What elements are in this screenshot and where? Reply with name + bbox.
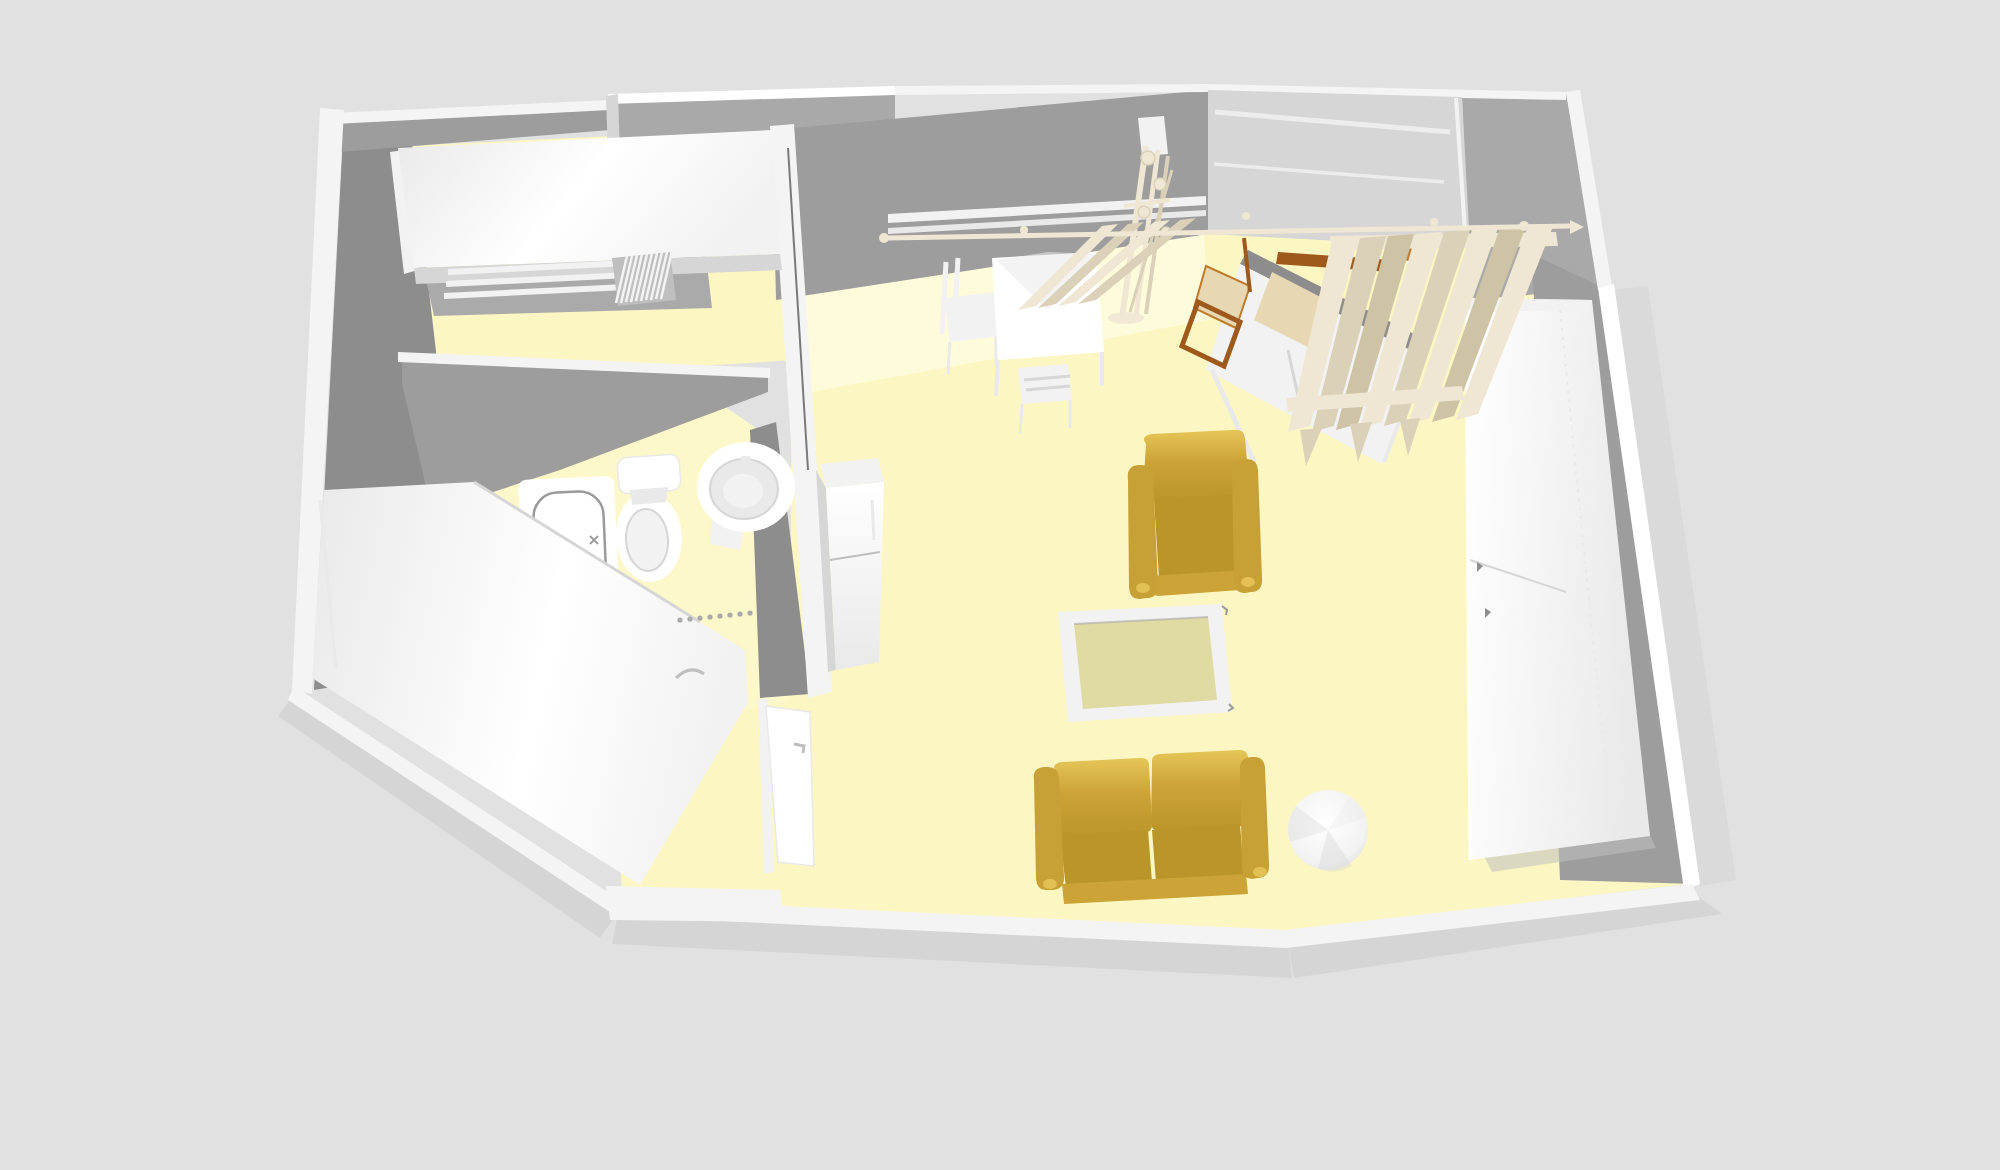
sofa-arm-shine	[1043, 879, 1057, 889]
coat-stand-knob	[1141, 151, 1155, 165]
table-leg	[996, 360, 998, 396]
curtain-ring	[1020, 226, 1028, 234]
counter-knob	[697, 615, 702, 620]
curtain-rod-finial	[879, 233, 889, 243]
curtain-ring	[1519, 221, 1529, 231]
curtain-ring	[1430, 218, 1438, 226]
chair-seat	[944, 292, 1000, 342]
coat-stand-knob	[1154, 178, 1166, 190]
coat-stand-knob	[1138, 206, 1150, 218]
sofa-right-arm	[1240, 757, 1269, 879]
fridge-front	[826, 482, 884, 670]
counter-knob	[707, 614, 712, 619]
chair-seat	[1018, 364, 1072, 404]
toilet-tank	[617, 454, 681, 494]
coffee-table[interactable]	[1058, 604, 1233, 722]
toilet-hinge	[630, 487, 668, 505]
chair-leg	[1020, 404, 1022, 434]
sink-tap	[741, 456, 751, 465]
coffee-table-glass	[1074, 617, 1217, 709]
counter-knob	[747, 610, 752, 615]
armchair-right-arm	[1232, 459, 1262, 593]
sofa-back-cushion-left	[1054, 758, 1152, 838]
counter-knob	[687, 616, 692, 621]
counter-knob	[677, 617, 682, 622]
coat-stand-base	[1108, 312, 1144, 324]
curtain-ring	[1242, 212, 1250, 220]
armchair-arm-shine	[1241, 577, 1255, 587]
sofa-back-cushion-right	[1151, 750, 1251, 831]
counter-knob	[717, 613, 722, 618]
sink-bowl-center	[723, 474, 763, 508]
sofa-arm-shine	[1253, 867, 1267, 877]
radiator[interactable]	[612, 251, 676, 306]
counter-knob	[727, 612, 732, 617]
render-viewport[interactable]	[0, 0, 2000, 1170]
sofa-seat-cushion-left	[1060, 830, 1152, 888]
floorplan-3d-view[interactable]	[0, 0, 2000, 1170]
fridge-handle	[872, 500, 874, 540]
entry-threshold	[606, 886, 784, 922]
chair-leg	[948, 342, 950, 374]
bed-mattress	[398, 130, 780, 268]
armchair-arm-shine	[1136, 583, 1150, 593]
sofa-seat-cushion-right	[1152, 824, 1244, 882]
armchair[interactable]	[1128, 430, 1262, 599]
armchair-seat	[1154, 494, 1243, 578]
counter-knob	[737, 611, 742, 616]
refrigerator[interactable]	[816, 458, 884, 672]
